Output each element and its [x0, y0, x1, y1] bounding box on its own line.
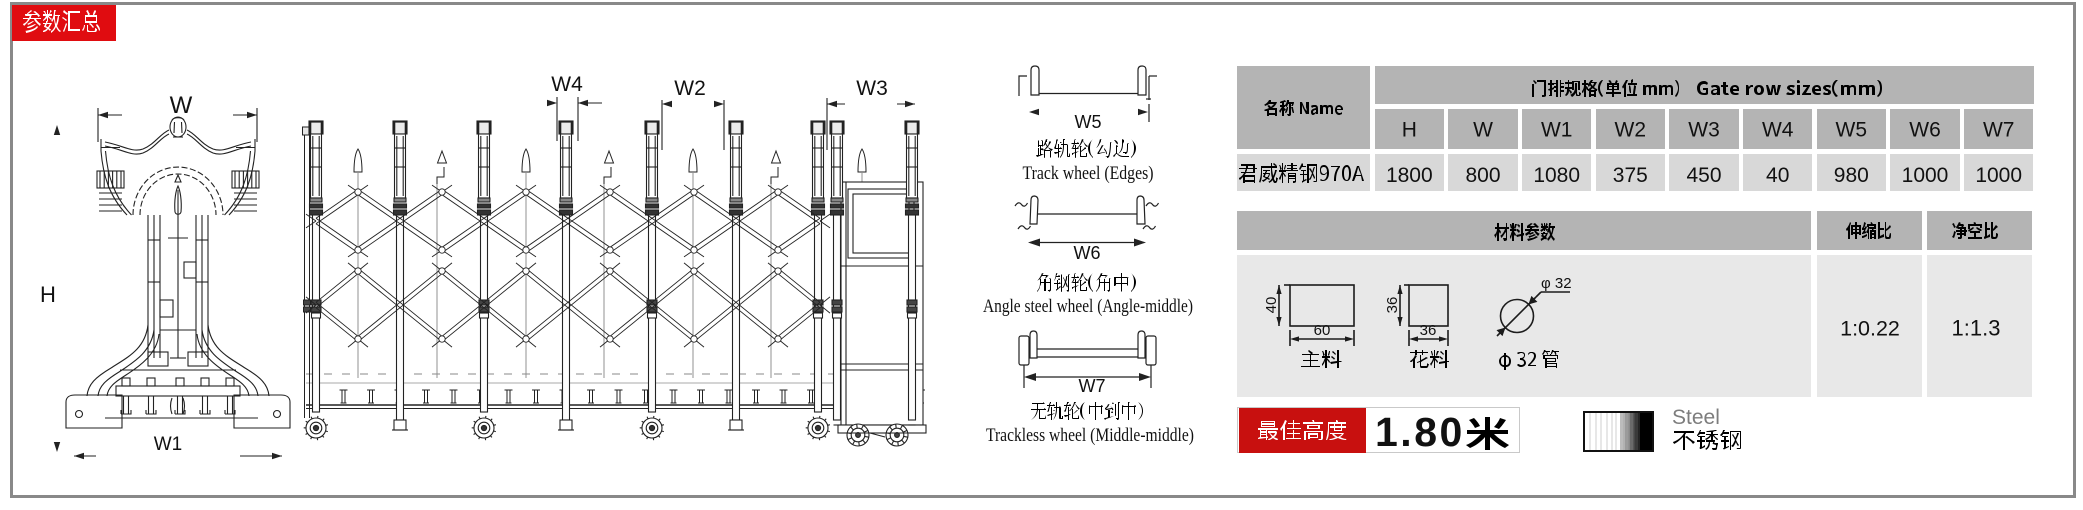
svg-text:36: 36: [1420, 322, 1437, 339]
svg-text:375: 375: [1613, 164, 1648, 187]
svg-text:W1: W1: [1541, 119, 1573, 142]
svg-text:1:1.3: 1:1.3: [1952, 316, 2001, 341]
svg-text:1800: 1800: [1386, 164, 1433, 187]
svg-text:W3: W3: [856, 77, 888, 100]
svg-text:Angle steel wheel (Angle-middl: Angle steel wheel (Angle-middle): [983, 296, 1193, 317]
svg-text:W1: W1: [154, 434, 183, 455]
svg-text:W2: W2: [674, 77, 706, 100]
svg-text:H: H: [40, 282, 56, 307]
svg-text:W5: W5: [1075, 112, 1102, 132]
svg-text:Track wheel (Edges): Track wheel (Edges): [1023, 163, 1154, 184]
svg-text:1000: 1000: [1975, 164, 2022, 187]
svg-text:1:0.22: 1:0.22: [1840, 317, 1900, 341]
svg-text:1.80: 1.80: [1375, 409, 1465, 455]
svg-text:1080: 1080: [1533, 164, 1580, 187]
svg-text:W7: W7: [1983, 119, 2015, 142]
svg-text:W3: W3: [1688, 119, 1720, 142]
svg-text:40: 40: [1263, 297, 1280, 314]
svg-text:W6: W6: [1909, 119, 1941, 142]
svg-text:φ 32: φ 32: [1541, 275, 1572, 292]
svg-text:980: 980: [1834, 164, 1869, 187]
svg-text:1000: 1000: [1902, 164, 1949, 187]
svg-text:W6: W6: [1074, 243, 1101, 263]
svg-text:W4: W4: [551, 73, 583, 96]
svg-text:W5: W5: [1836, 119, 1868, 142]
svg-text:Steel: Steel: [1672, 406, 1720, 429]
svg-text:W7: W7: [1079, 376, 1106, 396]
svg-text:W: W: [170, 92, 193, 119]
svg-text:450: 450: [1686, 164, 1721, 187]
svg-text:W: W: [1473, 119, 1493, 142]
svg-text:36: 36: [1384, 297, 1401, 314]
svg-text:H: H: [1402, 119, 1417, 142]
svg-text:800: 800: [1465, 164, 1500, 187]
svg-text:60: 60: [1314, 322, 1331, 339]
svg-text:40: 40: [1766, 164, 1789, 187]
svg-text:W4: W4: [1762, 119, 1794, 142]
svg-text:W2: W2: [1615, 119, 1647, 142]
svg-text:Trackless wheel (Middle-middle: Trackless wheel (Middle-middle): [986, 425, 1194, 446]
